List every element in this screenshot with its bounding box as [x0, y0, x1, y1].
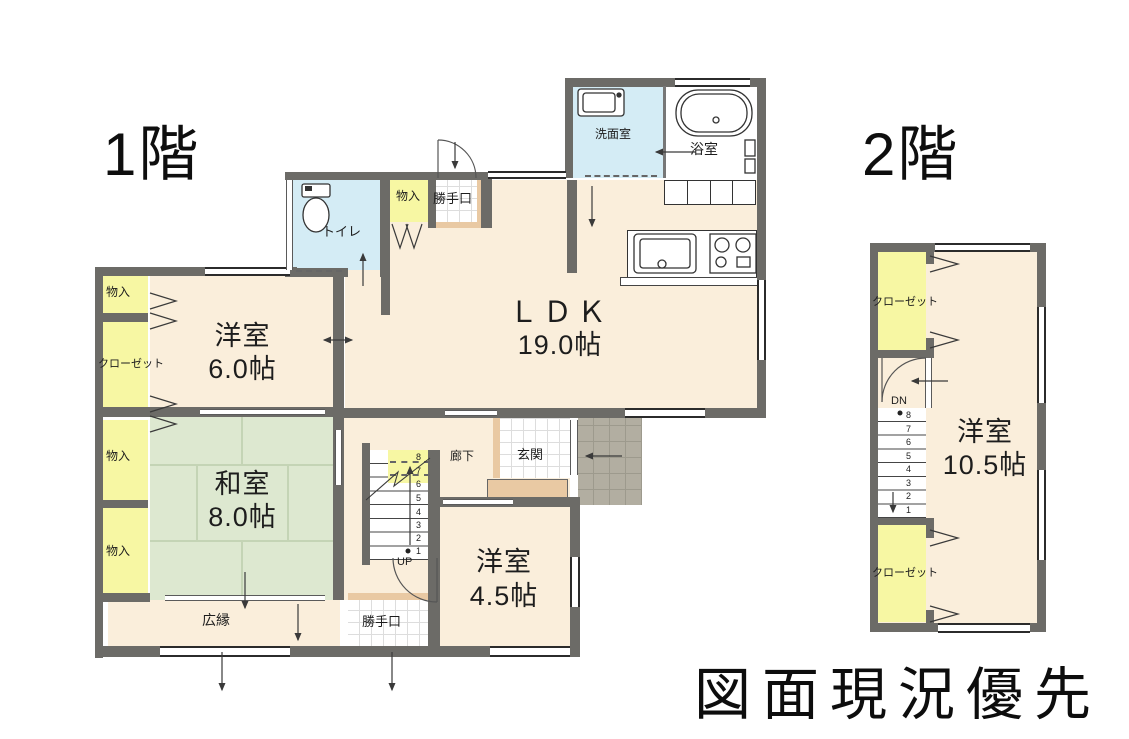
- stair-number: 8: [416, 452, 421, 462]
- floor-2-title: 2階: [862, 122, 959, 188]
- wall: [565, 78, 573, 178]
- floor-plan-canvas: 1階 洗面室 浴室 トイレ 物入 勝手口 ＬＤＫ 19.0帖 洋室 6.0帖 物…: [0, 0, 1129, 739]
- wall: [870, 350, 934, 358]
- storage-cell: [733, 181, 755, 204]
- tatami-line: [241, 417, 243, 464]
- entrance-door: [570, 420, 578, 475]
- window: [935, 243, 1030, 252]
- sliding-door: [445, 410, 497, 416]
- stair-number: 2: [906, 491, 911, 501]
- open-boundary-dashed: [296, 270, 342, 272]
- wall: [926, 610, 934, 623]
- sliding-door: [335, 430, 342, 485]
- floor-1-title: 1階: [103, 122, 200, 188]
- window: [675, 78, 750, 87]
- wall: [663, 86, 666, 178]
- back-door-top-label: 勝手口: [433, 192, 472, 206]
- wall: [481, 172, 492, 228]
- wall: [926, 251, 934, 264]
- window: [570, 557, 580, 607]
- closet-2f-top-label: クローゼット: [872, 296, 938, 308]
- kitchen-counter: [627, 230, 757, 278]
- wall: [362, 443, 370, 565]
- stair-number: 5: [416, 493, 421, 503]
- western-room-6-size: 6.0帖: [160, 355, 325, 385]
- western-room-6-label: 洋室: [160, 322, 325, 352]
- ldk-label: ＬＤＫ: [480, 298, 640, 330]
- back-door-bottom-label: 勝手口: [362, 615, 401, 629]
- entrance-label: 玄関: [517, 448, 543, 462]
- wall: [95, 407, 150, 417]
- wall: [95, 313, 148, 322]
- wall: [428, 450, 440, 655]
- wall: [757, 78, 766, 418]
- wall: [926, 338, 934, 350]
- sliding-door: [443, 499, 513, 505]
- western-room-105-size: 10.5帖: [910, 451, 1060, 481]
- sliding-door: [200, 409, 325, 415]
- window: [757, 280, 766, 360]
- storage-cell: [688, 181, 711, 204]
- window: [938, 623, 1030, 633]
- back-door-top-sill-h: [436, 222, 483, 228]
- veranda-label: 広縁: [202, 613, 230, 628]
- bathroom-label: 浴室: [690, 142, 718, 157]
- stairs-up-label: UP: [397, 556, 412, 568]
- stair-break-dash: [390, 474, 430, 476]
- wall: [567, 180, 577, 273]
- stair-break-dash: [390, 461, 430, 463]
- stairs-down-label: DN: [891, 395, 907, 407]
- sliding-door: [165, 595, 325, 601]
- drawing-priority-note: 図面現況優先: [694, 664, 1102, 727]
- thin-wall: [925, 358, 932, 408]
- window: [625, 408, 705, 418]
- corridor-label: 廊下: [450, 450, 474, 463]
- window: [1037, 307, 1046, 403]
- western-room-45-label: 洋室: [440, 548, 568, 578]
- ldk-size-label: 19.0帖: [480, 331, 640, 361]
- toilet-label: トイレ: [322, 225, 361, 239]
- entrance-porch: [578, 415, 642, 505]
- stair-number: 3: [416, 520, 421, 530]
- open-boundary-dashed: [585, 175, 657, 177]
- stair-number: 1: [906, 505, 911, 515]
- wall: [95, 593, 150, 602]
- wall: [380, 180, 390, 277]
- storage-left-2-label: 物入: [106, 450, 130, 463]
- stair-number: 6: [416, 479, 421, 489]
- wall: [285, 172, 492, 180]
- entrance-step-sill: [493, 417, 500, 478]
- window: [160, 646, 290, 657]
- tatami-line: [150, 464, 334, 466]
- stair-number: 4: [416, 507, 421, 517]
- japanese-room-label: 和室: [160, 470, 325, 500]
- stairs-1f-upper-highlight: [388, 450, 432, 483]
- stair-number: 2: [416, 533, 421, 543]
- storage-top-label: 物入: [396, 190, 420, 203]
- stair-number: 3: [906, 478, 911, 488]
- stair-number: 6: [906, 437, 911, 447]
- stair-number: 7: [416, 466, 421, 476]
- tatami-line: [241, 540, 243, 600]
- wall: [381, 277, 390, 315]
- closet-2f-bottom-label: クローゼット: [872, 567, 938, 579]
- window: [490, 646, 570, 657]
- bath-side-storage: [664, 180, 756, 205]
- stair-number: 4: [906, 464, 911, 474]
- wall: [95, 500, 148, 508]
- kitchen-counter-lip: [620, 277, 758, 286]
- wall: [878, 518, 934, 525]
- storage-cell: [711, 181, 734, 204]
- stair-number: 5: [906, 451, 911, 461]
- bathroom-floor: [666, 86, 757, 178]
- window: [1037, 470, 1046, 560]
- storage-cell: [665, 181, 688, 204]
- western-room-45-size: 4.5帖: [440, 582, 568, 612]
- storage-left-3-label: 物入: [106, 545, 130, 558]
- western-room-105-label: 洋室: [910, 418, 1060, 448]
- stair-number: 8: [906, 410, 911, 420]
- wall: [926, 525, 934, 538]
- washroom-label: 洗面室: [595, 128, 631, 141]
- window: [205, 267, 290, 276]
- window: [488, 171, 566, 179]
- back-door-bottom-sill: [348, 593, 428, 600]
- japanese-room-size: 8.0帖: [160, 503, 325, 533]
- storage-left-1-label: 物入: [106, 286, 130, 299]
- stair-number: 1: [416, 546, 421, 556]
- closet-left-label: クローゼット: [98, 358, 164, 370]
- thin-wall: [286, 180, 293, 270]
- stair-number: 7: [906, 424, 911, 434]
